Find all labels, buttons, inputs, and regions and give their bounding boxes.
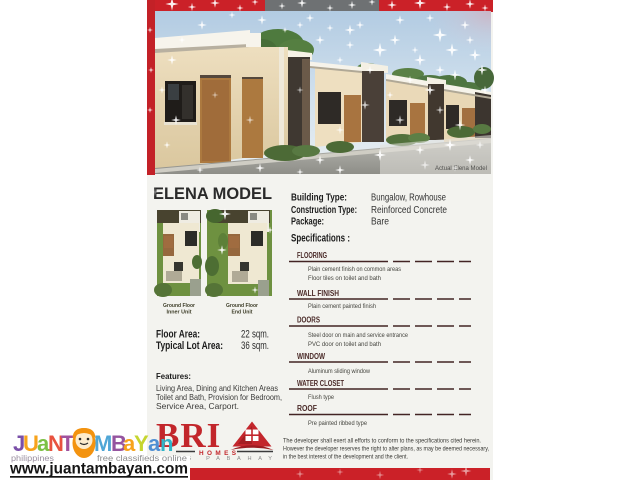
svg-text:WATER CLOSET: WATER CLOSET — [297, 379, 344, 388]
svg-text:22 sqm.: 22 sqm. — [241, 329, 269, 341]
svg-text:Floor tiles on toilet and bath: Floor tiles on toilet and bath — [308, 275, 381, 282]
svg-text:Actual Elena Model: Actual Elena Model — [435, 166, 487, 172]
svg-text:www.juantambayan.com: www.juantambayan.com — [9, 461, 188, 478]
svg-text:Service Area, Carport.: Service Area, Carport. — [156, 401, 239, 411]
svg-text:Ground Floor: Ground Floor — [226, 303, 259, 309]
svg-text:Ground Floor: Ground Floor — [163, 303, 196, 309]
svg-text:in the best interest of the de: in the best interest of the development … — [283, 454, 408, 461]
svg-text:36 sqm.: 36 sqm. — [241, 340, 269, 352]
svg-text:Building Type:: Building Type: — [291, 193, 347, 204]
svg-text:Inner Unit: Inner Unit — [167, 310, 192, 316]
svg-text:WINDOW: WINDOW — [297, 352, 326, 361]
svg-text:Steel door on main and service: Steel door on main and service entrance — [308, 332, 408, 339]
svg-text:Pre painted ribbed type: Pre painted ribbed type — [308, 420, 367, 427]
svg-text:Features:: Features: — [156, 371, 191, 381]
svg-text:Bare: Bare — [371, 217, 389, 228]
svg-text:DOORS: DOORS — [297, 316, 320, 325]
svg-text:Plain cement painted finish: Plain cement painted finish — [308, 303, 376, 310]
svg-text:WALL FINISH: WALL FINISH — [297, 289, 339, 298]
svg-text:ELENA MODEL: ELENA MODEL — [153, 185, 272, 203]
svg-text:Typical Lot Area:: Typical Lot Area: — [156, 340, 223, 352]
svg-text:Plain cement finish on common: Plain cement finish on common areas — [308, 266, 401, 273]
svg-text:Bungalow, Rowhouse: Bungalow, Rowhouse — [371, 193, 446, 204]
svg-text:ROOF: ROOF — [297, 404, 317, 413]
svg-text:Specifications :: Specifications : — [291, 233, 350, 245]
svg-text:FLOORING: FLOORING — [297, 251, 327, 260]
svg-text:The developer shall exert all: The developer shall exert all efforts to… — [283, 438, 481, 445]
svg-text:However the developer reserves: However the developer reserves the right… — [283, 446, 489, 453]
svg-text:Construction Type:: Construction Type: — [291, 205, 357, 216]
svg-text:PVC door on toilet and bath: PVC door on toilet and bath — [308, 341, 381, 348]
svg-text:Aluminum sliding window: Aluminum sliding window — [308, 368, 370, 375]
svg-text:Floor Area:: Floor Area: — [156, 329, 200, 341]
svg-text:Flush type: Flush type — [308, 394, 334, 401]
svg-text:End Unit: End Unit — [232, 310, 253, 316]
svg-text:Reinforced Concrete: Reinforced Concrete — [371, 205, 447, 216]
svg-text:Package:: Package: — [291, 217, 324, 228]
